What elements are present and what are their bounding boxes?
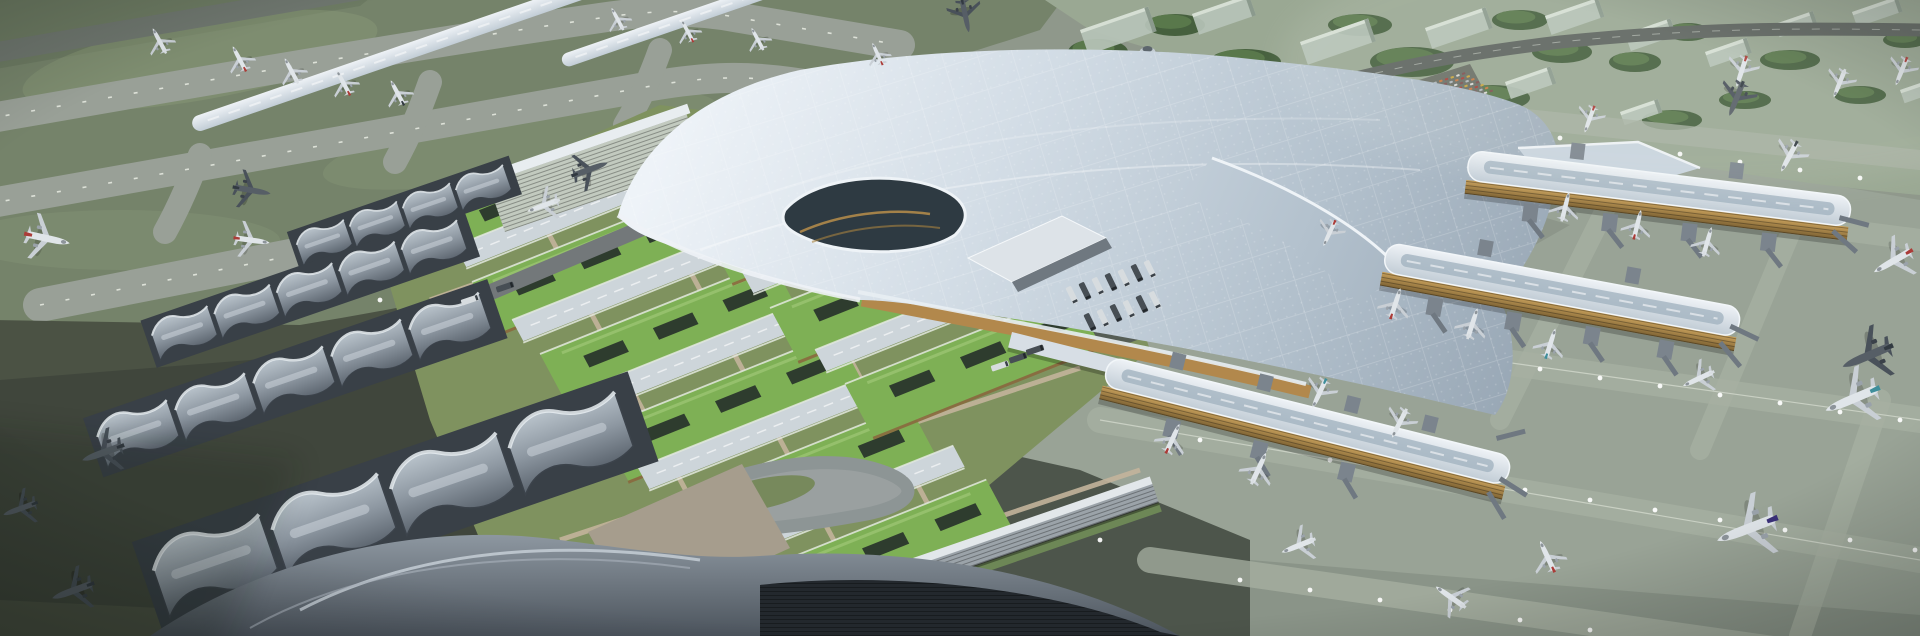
vignette: [0, 0, 1920, 636]
airport-aerial-rendering: Aerial rendering of an airport terminal …: [0, 0, 1920, 636]
atmosphere: [0, 0, 1920, 636]
scene-canvas: Aerial rendering of an airport terminal …: [0, 0, 1920, 636]
